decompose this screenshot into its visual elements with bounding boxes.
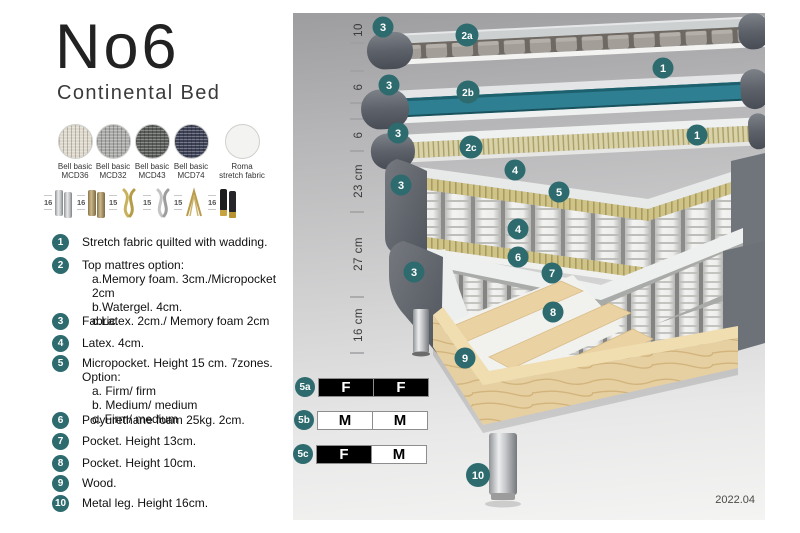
- feature-number-badge: 10: [52, 495, 69, 512]
- callout-badge: 2a: [456, 24, 479, 47]
- page-subtitle: Continental Bed: [57, 82, 220, 105]
- callout-badge: 4: [505, 160, 526, 181]
- callout-badge: 3: [379, 75, 400, 96]
- svg-text:5: 5: [556, 187, 562, 199]
- fabric-swatch: [96, 124, 131, 159]
- feature-text: Pocket. Height 10cm.: [82, 455, 196, 470]
- callout-badge: 1: [687, 125, 708, 146]
- svg-text:4: 4: [512, 165, 519, 177]
- svg-text:1: 1: [660, 63, 666, 75]
- svg-text:3: 3: [398, 180, 404, 192]
- svg-text:2c: 2c: [465, 143, 477, 154]
- feature-number-badge: 1: [52, 234, 69, 251]
- feature-text: Wood.: [82, 475, 116, 490]
- firmness-cell: M: [317, 411, 373, 430]
- page-title: No6: [55, 16, 180, 79]
- callout-badge: 6: [508, 247, 529, 268]
- bed-infographic-page: No6 Continental Bed Bell basicMCD36 Bell…: [0, 0, 800, 533]
- fabric-swatch-label: Romastretch fabric: [216, 162, 268, 180]
- bed-exploded-diagram: 10 6 6 23 cm 27 cm 16 cm: [293, 13, 765, 520]
- feature-subtext: a.Memory foam. 3cm./Micropocket 2cm: [92, 272, 290, 300]
- leg-height-label: 16: [77, 193, 85, 212]
- firmness-cell: F: [373, 378, 429, 397]
- feature-subtext: a. Firm/ firm: [92, 384, 290, 398]
- firmness-row-5b: 5b M M: [294, 410, 428, 430]
- dimension-label: 27 cm: [353, 237, 365, 271]
- leg-option: 15: [174, 187, 208, 219]
- cylinder-bronze-leg-icon: [85, 187, 109, 219]
- feature-number-badge: 9: [52, 475, 69, 492]
- version-label: 2022.04: [715, 494, 755, 506]
- feature-item: 10 Metal leg. Height 16cm.: [52, 495, 290, 512]
- feature-item: 4 Latex. 4cm.: [52, 335, 290, 352]
- callout-badge: 3: [388, 123, 409, 144]
- feature-number-badge: 2: [52, 257, 69, 274]
- dimension-label: 23 cm: [353, 164, 365, 198]
- leg-option: 15: [109, 187, 141, 219]
- fabric-swatch: [174, 124, 209, 159]
- feature-number-badge: 8: [52, 455, 69, 472]
- firmness-badge: 5b: [294, 410, 314, 430]
- callout-badge: 3: [391, 175, 412, 196]
- leg-option: 15: [143, 187, 175, 219]
- feature-number-badge: 7: [52, 433, 69, 450]
- leg-option: 16: [44, 187, 76, 219]
- leg-height-label: 15: [109, 193, 117, 212]
- feature-item: 1 Stretch fabric quilted with wadding.: [52, 234, 290, 251]
- feature-item: 7 Pocket. Height 13cm.: [52, 433, 290, 450]
- firmness-cell: M: [372, 411, 428, 430]
- callout-badge: 1: [653, 58, 674, 79]
- dimension-label: 16 cm: [353, 308, 365, 342]
- svg-text:7: 7: [549, 268, 555, 280]
- cylinder-black-gold-leg-icon: [216, 187, 240, 219]
- dimension-label: 10: [353, 23, 365, 37]
- feature-item: 9 Wood.: [52, 475, 290, 492]
- svg-text:3: 3: [386, 80, 392, 92]
- feature-text: Metal leg. Height 16cm.: [82, 495, 208, 510]
- feature-number-badge: 4: [52, 335, 69, 352]
- firmness-cell: F: [318, 378, 374, 397]
- cylinder-chrome-leg-icon: [52, 187, 76, 219]
- callout-badge: 9: [455, 348, 476, 369]
- svg-text:4: 4: [515, 224, 522, 236]
- svg-text:3: 3: [380, 22, 386, 34]
- feature-number-badge: 5: [52, 355, 69, 372]
- callout-badge: 10: [466, 463, 490, 487]
- svg-text:8: 8: [550, 307, 556, 319]
- leg-option: 16: [208, 187, 240, 219]
- callout-badge: 4: [508, 219, 529, 240]
- callout-badge: 5: [549, 182, 570, 203]
- bed-leg: [485, 433, 521, 508]
- twist-silver-leg-icon: [151, 187, 175, 219]
- leg-height-label: 15: [174, 193, 182, 212]
- svg-text:2a: 2a: [461, 31, 473, 42]
- feature-number-badge: 3: [52, 313, 69, 330]
- feature-item: 8 Pocket. Height 10cm.: [52, 455, 290, 472]
- callout-badge: 7: [542, 263, 563, 284]
- dimension-label: 6: [353, 132, 365, 139]
- svg-text:9: 9: [462, 353, 468, 365]
- fabric-swatch: [58, 124, 93, 159]
- feature-text: Polyurethane foam 25kg. 2cm.: [82, 412, 245, 427]
- twist-gold-leg-icon: [117, 187, 141, 219]
- feature-subtext: b. Medium/ medium: [92, 398, 290, 412]
- leg-option: 16: [77, 187, 109, 219]
- callout-badge: 2b: [457, 81, 480, 104]
- feature-text: Latex. 4cm.: [82, 335, 144, 350]
- hairpin-gold-leg-icon: [182, 187, 208, 219]
- feature-item: 3 Fabric.: [52, 313, 290, 330]
- dimension-label: 6: [353, 84, 365, 91]
- fabric-swatch: [135, 124, 170, 159]
- firmness-badge: 5a: [295, 377, 315, 397]
- feature-subtext: b.Watergel. 4cm.: [92, 300, 290, 314]
- firmness-row-5a: 5a F F: [295, 377, 429, 397]
- svg-text:3: 3: [395, 128, 401, 140]
- mattress-layer-2a: [366, 13, 765, 70]
- feature-text: Stretch fabric quilted with wadding.: [82, 234, 267, 249]
- svg-text:6: 6: [515, 252, 521, 264]
- svg-text:10: 10: [472, 470, 484, 482]
- callout-badge: 2c: [460, 136, 483, 159]
- fabric-swatch-label: Bell basicMCD74: [165, 162, 217, 180]
- callout-badge: 8: [543, 302, 564, 323]
- firmness-cell: F: [316, 445, 372, 464]
- feature-item: 6 Polyurethane foam 25kg. 2cm.: [52, 412, 290, 429]
- leg-height-label: 16: [44, 193, 52, 212]
- svg-text:2b: 2b: [462, 88, 474, 99]
- callout-badge: 3: [373, 17, 394, 38]
- svg-text:3: 3: [411, 267, 417, 279]
- svg-text:1: 1: [694, 130, 700, 142]
- firmness-badge: 5c: [293, 444, 313, 464]
- bed-leg: [412, 309, 430, 357]
- feature-text: Fabric.: [82, 313, 119, 328]
- fabric-swatch: [225, 124, 260, 159]
- firmness-cell: M: [371, 445, 427, 464]
- callout-badge: 3: [404, 262, 425, 283]
- leg-height-label: 15: [143, 193, 151, 212]
- firmness-row-5c: 5c F M: [293, 444, 427, 464]
- feature-text: Pocket. Height 13cm.: [82, 433, 196, 448]
- leg-height-label: 16: [208, 193, 216, 212]
- feature-number-badge: 6: [52, 412, 69, 429]
